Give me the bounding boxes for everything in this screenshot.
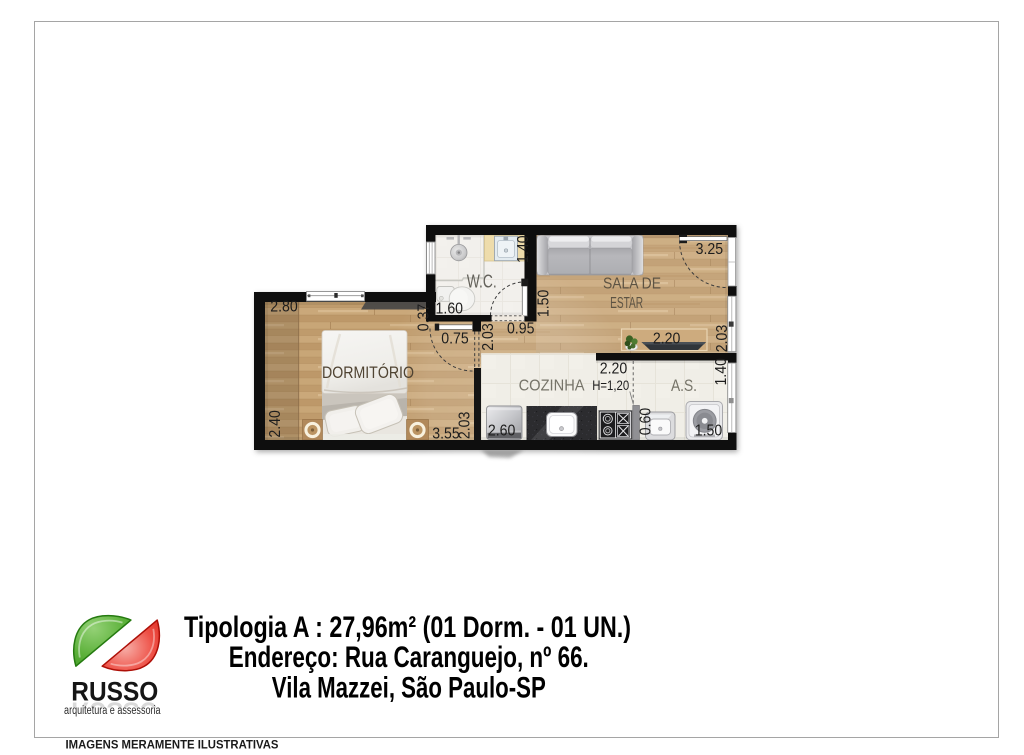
svg-text:1.40: 1.40 xyxy=(713,358,730,386)
svg-text:2.60: 2.60 xyxy=(488,423,516,440)
svg-text:SALA DE: SALA DE xyxy=(603,276,661,293)
svg-text:0.75: 0.75 xyxy=(441,331,469,348)
svg-text:H=1,20: H=1,20 xyxy=(592,377,629,393)
svg-text:1.40: 1.40 xyxy=(515,235,532,263)
svg-text:0.95: 0.95 xyxy=(507,321,535,338)
svg-text:0.60: 0.60 xyxy=(637,407,654,435)
svg-text:COZINHA: COZINHA xyxy=(519,377,586,394)
svg-text:2.20: 2.20 xyxy=(653,331,681,348)
svg-text:2.03: 2.03 xyxy=(714,325,731,353)
svg-text:1.50: 1.50 xyxy=(695,423,723,440)
svg-text:Vila Mazzei, São Paulo-SP: Vila Mazzei, São Paulo-SP xyxy=(272,672,546,705)
svg-text:Endereço: Rua Caranguejo, nº 6: Endereço: Rua Caranguejo, nº 66. xyxy=(229,641,589,674)
svg-text:DORMITÓRIO: DORMITÓRIO xyxy=(322,363,414,382)
svg-text:2.03: 2.03 xyxy=(456,412,473,440)
svg-text:arquitetura e assessoria: arquitetura e assessoria xyxy=(64,705,161,717)
svg-text:ESTAR: ESTAR xyxy=(610,295,643,312)
svg-text:3.25: 3.25 xyxy=(696,241,724,258)
svg-text:W.C.: W.C. xyxy=(467,271,497,292)
svg-text:Tipologia A : 27,96m² (01 Dorm: Tipologia A : 27,96m² (01 Dorm. - 01 UN.… xyxy=(184,611,631,644)
svg-text:2.03: 2.03 xyxy=(480,323,497,351)
svg-text:1.50: 1.50 xyxy=(536,289,553,317)
svg-text:2.80: 2.80 xyxy=(270,299,298,316)
svg-text:0.37: 0.37 xyxy=(415,304,432,332)
svg-text:2.40: 2.40 xyxy=(267,410,284,438)
svg-text:1.60: 1.60 xyxy=(436,301,464,318)
svg-text:2.20: 2.20 xyxy=(600,361,628,378)
svg-text:A.S.: A.S. xyxy=(671,376,697,395)
svg-text:IMAGENS MERAMENTE ILUSTRATIVAS: IMAGENS MERAMENTE ILUSTRATIVAS xyxy=(66,740,279,752)
